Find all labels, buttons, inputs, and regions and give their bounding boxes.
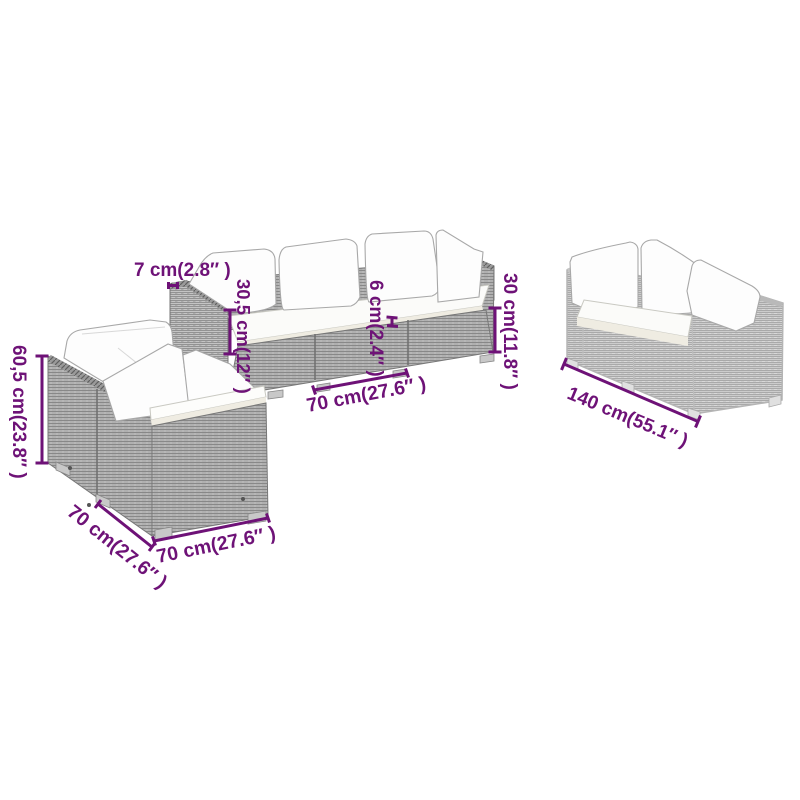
svg-text:30 cm(11.8″ ): 30 cm(11.8″ ): [499, 273, 520, 390]
svg-text:7 cm(2.8″ ): 7 cm(2.8″ ): [134, 260, 231, 281]
svg-text:30,5 cm(12″ ): 30,5 cm(12″ ): [233, 279, 254, 394]
svg-text:60,5 cm(23.8″ ): 60,5 cm(23.8″ ): [8, 345, 29, 479]
svg-text:6 cm(2.4″ ): 6 cm(2.4″ ): [365, 280, 386, 377]
